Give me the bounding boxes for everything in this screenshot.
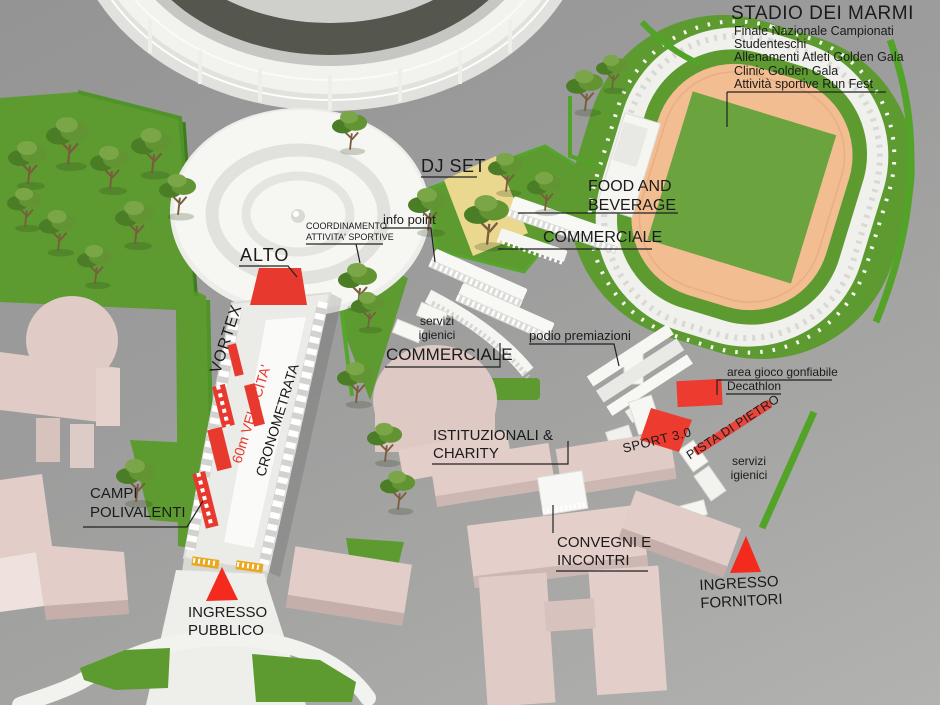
coordinamento-label: COORDINAMENTO ATTIVITA' SPORTIVE (306, 221, 394, 243)
campi-polivalenti-label: CAMPI POLIVALENTI (90, 484, 186, 522)
area-gioco-gonfiabile-label: area gioco gonfiabile (727, 365, 838, 379)
event-line: Allenamenti Atleti Golden Gala (734, 51, 904, 64)
podio-premiazioni-label: podio premiazioni (529, 328, 631, 343)
event-site-plan: STADIO DEI MARMI Finale Nazionale Campio… (0, 0, 940, 705)
commerciale-village-label: COMMERCIALE (386, 345, 513, 365)
stadio-dei-marmi-label: STADIO DEI MARMI (731, 3, 914, 25)
event-line: Attività sportive Run Fest (734, 78, 904, 91)
stadio-dei-marmi-events: Finale Nazionale Campionati Studenteschi… (734, 25, 904, 91)
dj-set-label: DJ SET (421, 156, 486, 177)
ingresso-pubblico-label: INGRESSO PUBBLICO (188, 604, 267, 640)
decathlon-area (676, 379, 722, 407)
alto-area (250, 268, 307, 305)
ingresso-fornitori-label: INGRESSO FORNITORI (699, 573, 783, 613)
food-and-beverage-label: FOOD AND BEVERAGE (588, 177, 676, 215)
servizi-igienici-east-label: servizi igienici (731, 455, 768, 482)
servizi-igienici-west-label: servizi igienici (419, 315, 456, 342)
alto-label: ALTO (240, 245, 289, 266)
istituzionali-charity-label: ISTITUZIONALI & CHARITY (433, 427, 553, 463)
event-line: Clinic Golden Gala (734, 65, 904, 78)
decathlon-label: Decathlon (727, 379, 781, 393)
stadio-olimpico (68, 0, 592, 111)
convegni-white-hall (537, 471, 587, 516)
commerciale-stadio-label: COMMERCIALE (543, 229, 662, 247)
convegni-incontri-label: CONVEGNI E INCONTRI (557, 534, 651, 570)
building-left-apse (0, 296, 120, 468)
